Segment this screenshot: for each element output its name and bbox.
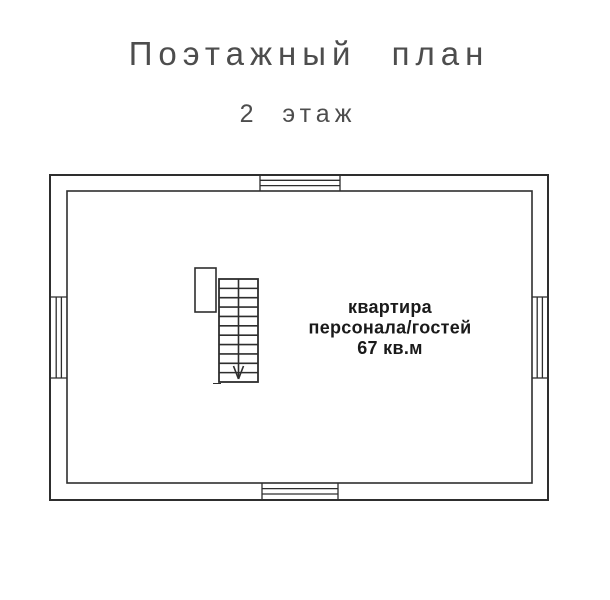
room-name-line2: персонала/гостей — [309, 318, 472, 338]
room-area: 67 кв.м — [357, 338, 423, 358]
floor-subtitle: 2 этаж — [240, 100, 357, 128]
floor-plan-page: Поэтажный план 2 этаж — [0, 0, 610, 600]
staircase — [213, 279, 258, 384]
page-title: Поэтажный план — [129, 35, 490, 72]
floor-plan — [50, 175, 548, 500]
floor-plan-canvas: Поэтажный план 2 этаж — [0, 0, 610, 600]
room-name-line1: квартира — [348, 297, 433, 317]
shaft-rectangle — [195, 268, 216, 312]
